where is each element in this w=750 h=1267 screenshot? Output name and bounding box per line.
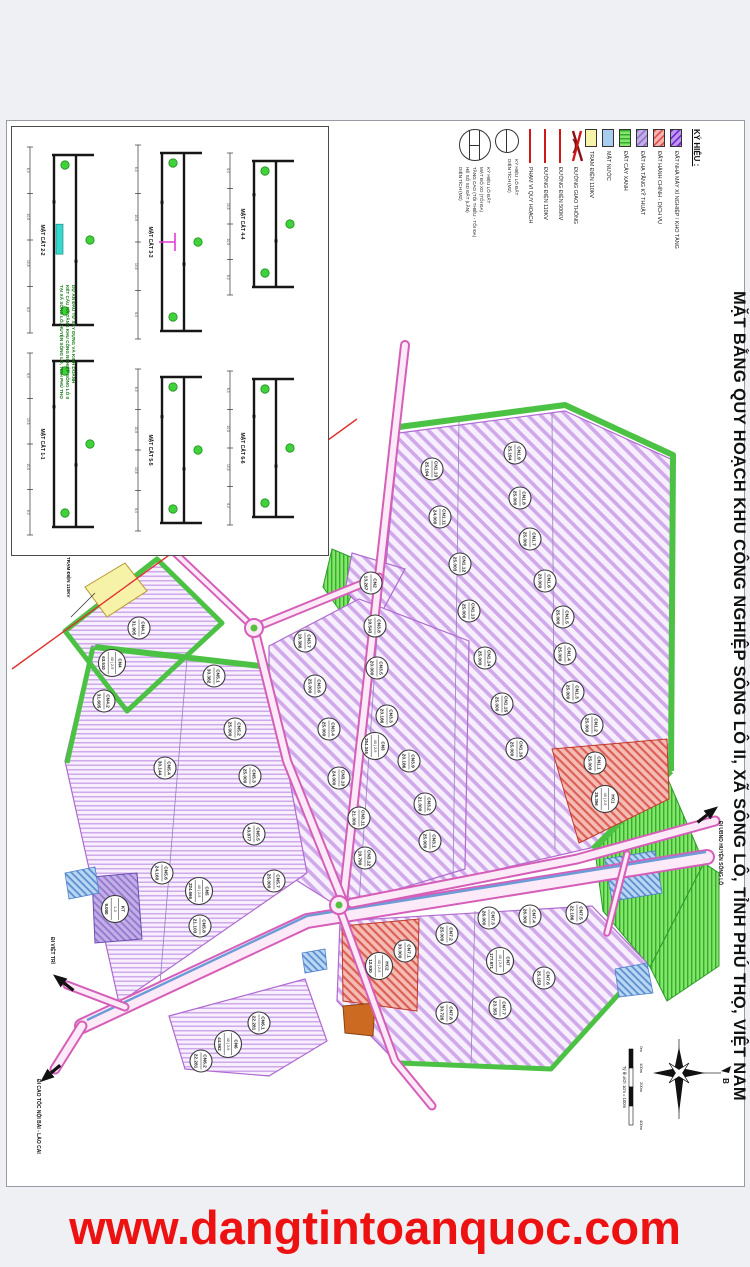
label: CN1.6 [546, 574, 552, 588]
roundabout-island [251, 625, 258, 632]
scalebar-segment [629, 1087, 633, 1106]
parcel-circle-CN1.5: CN1.525.000 [552, 606, 574, 628]
section-label: MẶT CẮT 6-6 [239, 432, 247, 463]
legend-swatch-mn [603, 129, 615, 147]
parcel-circle-CN3.11: CN3.1121.000 [348, 807, 370, 829]
parcel-circle-CN5.6: CN5.624.160 [151, 862, 173, 884]
parcel-circle-CN7: CN740 | 2-9177.971 [487, 948, 514, 975]
legend-label: PHẠM VI QUY HOẠCH [528, 167, 534, 223]
legend-label: KÝ HIỆU LÔ ĐẤT [486, 167, 491, 237]
label: 177.971 [489, 953, 494, 969]
tree-icon [261, 269, 269, 277]
parcel-circle-CN1.10: CN1.1025.194 [421, 458, 443, 480]
label: CN3 [381, 741, 386, 751]
drawing-sheet: ĐI VIỆT TRÌĐI CAO TỐC NỘI BÀI - LÀO CAIĐ… [6, 120, 745, 1187]
label: 22.281 [251, 1016, 257, 1031]
parcel-circle-HC1: HC140 | 2-925.356 [592, 786, 619, 813]
label: 25.000 [242, 769, 248, 784]
label: 25.194 [507, 446, 513, 461]
label: CN1.9 [516, 446, 522, 460]
label: 13.267 [363, 576, 369, 591]
scalebar-tick: 0m [639, 1046, 644, 1052]
red-line-icon [560, 129, 562, 163]
dim-label: 6,0 [134, 387, 138, 392]
label: CN1.11 [441, 509, 447, 525]
label: 20.000 [537, 574, 543, 589]
label: CN3.6 [316, 679, 322, 693]
tree-icon [169, 505, 177, 513]
label: 30.382 [206, 669, 212, 684]
parcel-circle-CN3.1: CN3.125.000 [419, 830, 441, 852]
label: 25.000 [307, 679, 313, 694]
road-interchange-icon [572, 129, 585, 163]
dim-label: 6,0 [26, 373, 30, 378]
label: CN5.7 [275, 874, 281, 888]
red-line-icon [545, 129, 547, 163]
scalebar-tick: 400m [639, 1120, 644, 1131]
parcel-circle-CN7.2: CN7.225.000 [436, 923, 458, 945]
label: 63.510 [101, 656, 106, 670]
dim-label: 10,5 [26, 213, 30, 220]
label: CN3.11 [360, 810, 366, 826]
parcel-circle-CN7.1: CN7.130.000 [394, 940, 416, 962]
lot-circle-icon [495, 129, 519, 153]
tree-icon [261, 167, 269, 175]
legend-item: ĐƯỜNG GIAO THÔNG [568, 129, 583, 327]
legend-label: DIỆN TÍCH (M2) [458, 167, 463, 237]
parcel-circle-CN5.4: CN5.430.144 [154, 757, 176, 779]
parcel-circle-CN3.5: CN3.520.000 [366, 657, 388, 679]
tree-icon [61, 509, 69, 517]
detail [253, 415, 256, 418]
special-parcel-orange [343, 1003, 375, 1036]
label: CN7.8 [448, 1006, 454, 1020]
label: 23.353 [492, 1001, 498, 1016]
label: 40 | 2-9 [603, 793, 607, 806]
label: CN5.6 [163, 866, 169, 880]
dim-label: 10,5 [26, 260, 30, 267]
cross-sections-panel: 6,010,510,56,0MẶT CẮT 2-26,010,510,56,0M… [11, 126, 329, 556]
legend-item: PHẠM VI QUY HOẠCH [523, 129, 538, 327]
legend-label: HỆ SỐ SD ĐẤT (LẦN) [465, 167, 470, 237]
detail [183, 263, 186, 266]
scalebar-caption: Tỷ lệ xích 1cm = 100m [622, 1066, 627, 1109]
project-notes: DỰ ÁN ĐẦU TƯ XÂY DỰNG VÀ KINH DOANHKẾT C… [57, 285, 76, 443]
parcel-circle-CN3.7: CN3.719.386 [294, 630, 316, 652]
dim-label: 10,5 [134, 214, 138, 221]
legend-swatch-hc [654, 129, 666, 147]
dim-label: 10,5 [134, 467, 138, 474]
label: 25.000 [565, 685, 571, 700]
label: CN1.5 [564, 610, 570, 624]
legend-item: ĐƯỜNG ĐIỆN 500KV [553, 129, 568, 327]
label: CN1.3 [574, 685, 580, 699]
parcel-circle-CN1.4: CN1.425.000 [554, 643, 576, 665]
label: CN7.1 [406, 944, 412, 958]
detail [161, 201, 164, 204]
label: CN6.2 [202, 1054, 208, 1068]
label: CN7.3 [490, 911, 496, 925]
parcel-circle-CN3.10: CN3.1024.000 [328, 767, 350, 789]
label: CN3.2 [426, 797, 432, 811]
map-legend: KÝ HIỆU : ĐẤT NHÀ MÁY XÍ NGHIỆP / KHO TÀ… [331, 129, 701, 327]
legend-item: ĐẤT HÀNH CHÍNH - DỊCH VỤ [651, 129, 668, 327]
pond [302, 949, 327, 973]
label: 19.543 [367, 619, 373, 634]
parcel-circle-CN5.8: CN5.821.103 [189, 915, 211, 937]
parcel-circle-CN3.3: CN3.320.186 [376, 705, 398, 727]
parcel-circle-CN7.3: CN7.326.000 [478, 907, 500, 929]
parcel-circle-CN3.4: CN3.425.000 [318, 718, 340, 740]
label: 43.877 [246, 827, 252, 842]
label: CN7.2 [448, 927, 454, 941]
legend-item: ĐƯỜNG ĐIỆN 110KV [538, 129, 553, 327]
dim-label: 10,5 [134, 263, 138, 270]
legend-item: TRẠM ĐIỆN 110KV [583, 129, 600, 327]
website-url: www.dangtintoanquoc.com [69, 1200, 681, 1255]
label: 25.194 [424, 462, 430, 477]
legend-label: KÝ HIỆU LÔ ĐẤT [514, 159, 519, 195]
label: CN1.8 [521, 491, 527, 505]
parcel-circle-CN7.6: CN7.625.153 [533, 967, 555, 989]
legend-item: MẶT NƯỚC [600, 129, 617, 327]
label: 24.000 [432, 510, 438, 525]
scalebar-tick: 200m [639, 1082, 644, 1093]
tree-icon [61, 161, 69, 169]
roundabout-island [336, 902, 343, 909]
legend-item: ĐẤT NHÀ MÁY XÍ NGHIỆP / KHO TÀNG [668, 129, 685, 327]
watermark-banner: www.dangtintoanquoc.com [0, 1187, 750, 1267]
label: 254.346 [364, 738, 369, 754]
label: 19.790 [357, 851, 363, 866]
label: 25.000 [555, 610, 561, 625]
label: 40 | 2-9 [197, 885, 201, 898]
tree-icon [86, 236, 94, 244]
legend-swatch-fac [671, 129, 683, 147]
label: CN1.13 [470, 603, 476, 620]
legend-lot-symbol-simple: KÝ HIỆU LÔ ĐẤTDIỆN TÍCH (M2) [495, 129, 519, 327]
label: CN5.5 [255, 827, 261, 841]
detail [275, 465, 278, 468]
label: 9.000 [104, 904, 109, 916]
label: CN1.7 [531, 532, 537, 546]
dim-label: 10,5 [226, 464, 230, 471]
dim-label: 6,0 [26, 510, 30, 515]
parcel-circle-CN6.1: CN6.122.281 [248, 1012, 270, 1034]
sheet-title: MẶT BẰNG QUY HOẠCH KHU CÔNG NGHIỆP SÔNG … [726, 291, 748, 1131]
parcel-circle-CN3.12: CN3.1219.790 [354, 847, 376, 869]
label: CN1.12 [461, 556, 467, 573]
note-line: KẾT CẤU HẠ TẦNG KHU CÔNG NGHIỆP SÔNG LÔ … [64, 285, 70, 443]
legend-swatch-td [586, 129, 598, 147]
label: CN3.7 [306, 634, 312, 648]
label: CN3.3 [388, 709, 394, 723]
legend-label: ĐƯỜNG GIAO THÔNG [573, 167, 579, 224]
parcel-circle-CN1.16: CN1.1625.000 [506, 738, 528, 760]
parcel-circle-CN1.8: CN1.825.000 [509, 487, 531, 509]
label: 25.000 [587, 756, 593, 771]
label: 21.000 [417, 797, 423, 812]
label: CN3.10 [340, 770, 346, 787]
label: 25.000 [227, 722, 233, 737]
legend-label: MẬT ĐỘ XD (TỐI ĐA) [479, 167, 484, 237]
label: 25.000 [512, 491, 518, 506]
label: 25.000 [422, 834, 428, 849]
label: HC1 [611, 794, 616, 804]
section-label: MẶT CẮT 1-1 [39, 428, 47, 459]
legend-label: TRẠM ĐIỆN 110KV [589, 151, 595, 198]
scalebar-segment [629, 1068, 633, 1087]
label: CN7 [506, 956, 511, 966]
dim-label: 6,0 [26, 168, 30, 173]
parcel-circle-CN4.1: CN4.131.905 [128, 617, 150, 639]
label: 25.153 [536, 971, 542, 986]
pond [615, 963, 653, 997]
dim-label: 10,5 [134, 426, 138, 433]
tree-icon [194, 446, 202, 454]
label: 25.000 [321, 722, 327, 737]
parcel-circle-CN3: CN340 | 2-9254.346 [362, 733, 389, 760]
dim-label: 10,5 [26, 463, 30, 470]
label: 22.281 [193, 1054, 199, 1069]
parcel-circle-CN1.2: CN1.225.000 [581, 714, 603, 736]
parcel-circle-CN3.9: CN3.920.186 [398, 750, 420, 772]
compass-rose: B [653, 1039, 731, 1119]
label: CN5 [205, 886, 210, 896]
label: HC2 [385, 961, 390, 971]
parcel-circle-CN5.7: CN5.725.000 [263, 870, 285, 892]
label: 40 | 2-9 [110, 657, 114, 670]
tree-icon [169, 159, 177, 167]
section-MẶT CẮT 3-3: 6,010,510,56,0MẶT CẮT 3-3 [134, 145, 202, 339]
section-MẶT CẮT 5-5: 6,010,510,56,0MẶT CẮT 5-5 [134, 369, 202, 531]
parcel-circle-CN7.8: CN7.830.726 [436, 1002, 458, 1024]
label: CN6.1 [260, 1016, 266, 1030]
legend-label: ĐẤT NHÀ MÁY XÍ NGHIỆP / KHO TÀNG [674, 151, 680, 249]
label: CN5.8 [201, 919, 207, 933]
label: CN5.1 [215, 669, 221, 683]
parcel-circle-CN6.2: CN6.222.281 [190, 1050, 212, 1072]
label: 25.000 [477, 651, 483, 666]
parcel-circle-CN4: CN440 | 2-963.510 [99, 650, 126, 677]
detail [75, 260, 78, 263]
tree-icon [261, 499, 269, 507]
label: 22.186 [569, 906, 575, 921]
dim-label: 6,0 [26, 307, 30, 312]
section-MẶT CẮT 6-6: 6,010,510,56,0MẶT CẮT 6-6 [226, 371, 294, 525]
star-main [653, 1047, 705, 1113]
note-line: TẠI XÃ SÔNG LÔ, HUYỆN SÔNG LÔ, TỈNH PHÚ … [57, 285, 63, 443]
label: 25.356 [594, 792, 599, 806]
pond [65, 867, 99, 899]
dim-label: 10,5 [226, 238, 230, 245]
road-exit-label: ĐI CAO TỐC NỘI BÀI - LÀO CAI [35, 1079, 43, 1154]
label: 31.905 [131, 621, 137, 636]
parcel-circle-CN6: CN640 | 2-944.562 [215, 1031, 242, 1058]
parcel-circle-CN7.5: CN7.522.186 [566, 902, 588, 924]
label: 1-3 [113, 906, 117, 912]
parcel-circle-HC2: HC240 | 2-912.930 [366, 953, 393, 980]
tree-icon [286, 220, 294, 228]
label: CN7.6 [545, 971, 551, 985]
label: 26.000 [522, 909, 528, 924]
lot-circle-icon [459, 129, 491, 161]
station-label: TRẠM ĐIỆN 110KV [66, 557, 73, 599]
label: CN1.16 [518, 741, 524, 758]
parcel-circle-CN4.2: CN4.231.605 [93, 690, 115, 712]
label: 21.103 [192, 919, 198, 934]
legend-item: ĐẤT HẠ TẦNG KỸ THUẬT [634, 129, 651, 327]
label: 24.160 [154, 866, 160, 881]
label: 40 | 2-9 [498, 955, 502, 968]
label: 26.000 [481, 911, 487, 926]
label: CN3.12 [366, 850, 372, 867]
parcel-circle-CN7.7: CN7.723.353 [489, 997, 511, 1019]
tree-icon [169, 313, 177, 321]
tree-icon [169, 383, 177, 391]
label: CN3.4 [330, 722, 336, 736]
label: CN3.5 [378, 661, 384, 675]
dim-label: 6,0 [226, 388, 230, 393]
label: 30.000 [397, 944, 403, 959]
parcel-circle-CN1.11: CN1.1124.000 [429, 506, 451, 528]
label: CN7.7 [501, 1001, 507, 1015]
label: 25.000 [584, 718, 590, 733]
label: 24.000 [331, 771, 337, 786]
detail [183, 467, 186, 470]
label: 40 | 2-9 [373, 740, 377, 753]
label: 25.000 [494, 697, 500, 712]
parcel-circle-CN3.6: CN3.625.000 [304, 675, 326, 697]
road [55, 1026, 82, 1069]
label: 25.000 [266, 874, 272, 889]
parcel-circle-CN2: CN213.267 [360, 572, 382, 594]
section-label: MẶT CẮT 4-4 [239, 208, 247, 239]
label: 12.930 [368, 959, 373, 973]
label: CN1.4 [566, 647, 572, 661]
legend-label: ĐẤT CÂY XANH [623, 151, 629, 191]
label: CN4.1 [140, 621, 146, 635]
legend-label: ĐẤT HÀNH CHÍNH - DỊCH VỤ [657, 151, 663, 224]
red-line-icon [530, 129, 532, 163]
legend-swatch-ht [637, 129, 649, 147]
parcel-circle-CN1.15: CN1.1525.000 [491, 693, 513, 715]
label: 30.144 [157, 761, 163, 776]
parcel-circle-CN3.8: CN3.819.543 [364, 615, 386, 637]
label: CN4 [118, 658, 123, 668]
tree-icon [286, 444, 294, 452]
parcel-circle-KT: KT1-39.000 [102, 896, 129, 923]
label: 25.000 [509, 742, 515, 757]
parcel-circle-CN5.1: CN5.130.382 [203, 665, 225, 687]
detail [53, 200, 56, 203]
parcel-circle-CN5.2: CN5.225.000 [224, 718, 246, 740]
label: 20.000 [369, 661, 375, 676]
detail [161, 415, 164, 418]
label: CN7.4 [531, 909, 537, 923]
legend-label: TẦNG CAO (TỐI THIỂU - TỐI ĐA) [472, 167, 477, 237]
parcel-circle-CN1.9: CN1.925.194 [504, 442, 526, 464]
label: 21.000 [351, 811, 357, 826]
label: CN7.5 [578, 906, 584, 920]
detail [275, 239, 278, 242]
tree-icon [194, 238, 202, 246]
label: 25.000 [439, 927, 445, 942]
note-line: DỰ ÁN ĐẦU TƯ XÂY DỰNG VÀ KINH DOANH [70, 285, 76, 443]
label: CN1.10 [433, 461, 439, 478]
parcel-circle-CN5.3: CN5.325.000 [239, 765, 261, 787]
parcel-circle-CN1.3: CN1.325.000 [562, 681, 584, 703]
dim-label: 6,0 [134, 508, 138, 513]
parcel-circle-CN1.12: CN1.1225.003 [449, 553, 471, 575]
label: CN1.15 [503, 696, 509, 713]
label: 30.726 [439, 1006, 445, 1021]
scalebar-tick: 100m [639, 1063, 644, 1074]
label: 20.186 [379, 709, 385, 724]
legend-heading: KÝ HIỆU : [685, 129, 701, 327]
detail [253, 193, 256, 196]
legend-label: DIỆN TÍCH (M2) [507, 159, 512, 195]
section-label: MẶT CẮT 5-5 [147, 434, 155, 465]
label: CN1.14 [486, 650, 492, 667]
label: CN1.2 [593, 718, 599, 732]
scalebar-segment [629, 1049, 633, 1068]
water-channel [56, 224, 63, 254]
dim-label: 6,0 [134, 312, 138, 317]
legend-label: MẶT NƯỚC [606, 151, 612, 181]
label: 19.386 [297, 634, 303, 649]
section-label: MẶT CẮT 3-3 [147, 226, 155, 257]
tree-icon [86, 440, 94, 448]
label: CN4.2 [105, 694, 111, 708]
label: CN1.1 [596, 756, 602, 770]
detail [75, 463, 78, 466]
label: CN3.8 [376, 619, 382, 633]
parcel-circle-CN1.1: CN1.125.000 [584, 752, 606, 774]
legend-lot-symbol-full: KÝ HIỆU LÔ ĐẤTMẬT ĐỘ XD (TỐI ĐA)TẦNG CAO… [458, 129, 491, 327]
parcel-circle-CN1.13: CN1.1325.000 [458, 600, 480, 622]
parcel-circle-CN1.6: CN1.620.000 [534, 570, 556, 592]
parcel-circle-CN7.4: CN7.426.000 [519, 905, 541, 927]
label: 224.666 [188, 883, 193, 899]
scalebar-segment [629, 1106, 633, 1125]
label: CN3.1 [431, 834, 437, 848]
detail [53, 405, 56, 408]
label: 40 | 2-9 [377, 960, 381, 973]
label: CN2 [372, 578, 378, 588]
parcel-circle-CN1.7: CN1.725.000 [519, 528, 541, 550]
dim-label: 6,0 [226, 275, 230, 280]
label: 44.562 [217, 1037, 222, 1051]
label: 20.186 [401, 754, 407, 769]
label: CN5.4 [166, 761, 172, 775]
label: 25.003 [452, 557, 458, 572]
section-MẶT CẮT 4-4: 6,010,510,56,0MẶT CẮT 4-4 [226, 153, 294, 295]
dim-label: 10,5 [226, 203, 230, 210]
dim-label: 6,0 [134, 167, 138, 172]
tree-icon [261, 385, 269, 393]
parcel-circle-CN1.14: CN1.1425.000 [474, 647, 496, 669]
section-label: MẶT CẮT 2-2 [39, 224, 47, 255]
label: 25.000 [522, 532, 528, 547]
legend-label: ĐƯỜNG ĐIỆN 110KV [543, 167, 549, 220]
label: CN6 [234, 1039, 239, 1049]
legend-label: ĐƯỜNG ĐIỆN 500KV [558, 167, 564, 220]
road-exit-label: ĐI VIỆT TRÌ [49, 937, 57, 965]
label: 25.000 [557, 647, 563, 662]
label: 40 | 2-9 [226, 1038, 230, 1051]
parcel-circle-CN3.2: CN3.221.000 [414, 793, 436, 815]
